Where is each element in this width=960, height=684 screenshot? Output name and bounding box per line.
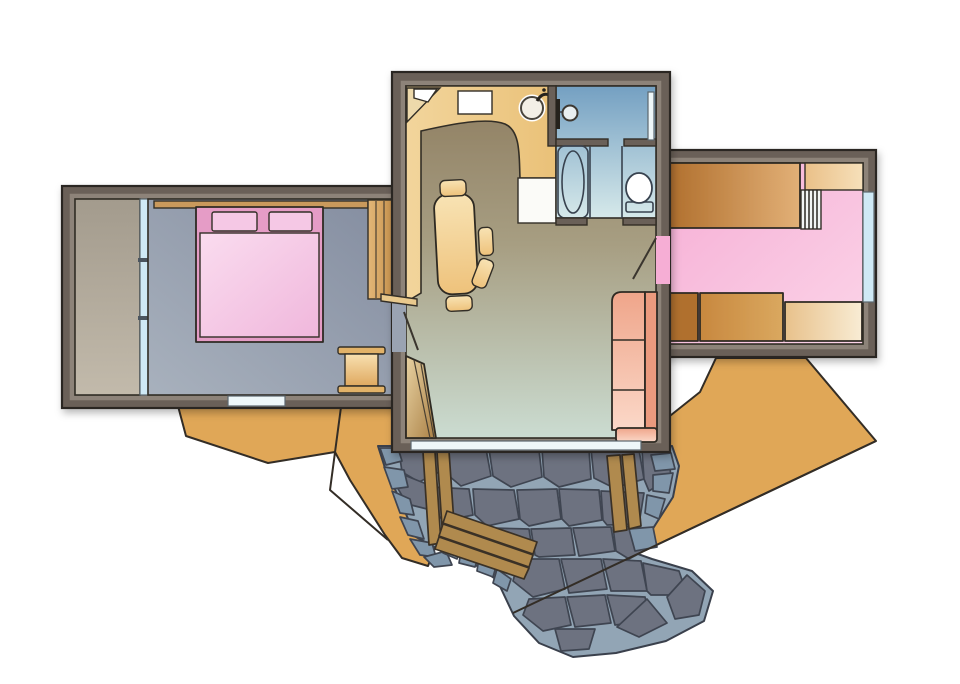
nightstand-body bbox=[345, 354, 378, 386]
floor-plan-stage bbox=[0, 0, 960, 684]
loft-platform bbox=[668, 163, 800, 228]
bathroom-wall bbox=[623, 218, 656, 225]
toilet bbox=[626, 173, 652, 203]
stone bbox=[473, 489, 519, 526]
loft-ladder bbox=[801, 190, 821, 229]
kitchen-counter bbox=[518, 178, 556, 223]
porch-floor bbox=[75, 199, 140, 395]
corner-shelf bbox=[805, 163, 863, 190]
main-building bbox=[392, 72, 670, 452]
kitchen-sink bbox=[521, 97, 543, 119]
shower-head-icon bbox=[563, 106, 578, 121]
sliding-glass-door bbox=[411, 441, 641, 450]
sofa-armrest bbox=[616, 428, 657, 442]
stone bbox=[573, 527, 615, 556]
right-wing bbox=[656, 150, 876, 357]
bathroom-wall-shelf bbox=[648, 92, 654, 140]
bedroom-door-opening bbox=[392, 300, 406, 352]
stove bbox=[458, 91, 492, 114]
stone bbox=[555, 629, 595, 651]
stone bbox=[542, 449, 591, 487]
bedspread bbox=[200, 233, 319, 337]
chair bbox=[478, 227, 493, 256]
pillow bbox=[269, 212, 312, 231]
sofa-seat bbox=[612, 292, 645, 430]
bunk-room-door-opening bbox=[656, 236, 670, 284]
bunk-room-window bbox=[863, 192, 874, 302]
chair bbox=[446, 295, 473, 311]
sofa-back bbox=[645, 292, 657, 430]
bathroom-wall bbox=[556, 218, 587, 225]
border-stone bbox=[651, 453, 675, 471]
storage-cabinet-mid bbox=[700, 293, 783, 341]
nightstand-base bbox=[338, 386, 385, 393]
pillow bbox=[212, 212, 257, 231]
stone bbox=[517, 489, 561, 526]
storage-bench bbox=[785, 302, 862, 341]
faucet-knob bbox=[542, 88, 546, 92]
left-wing bbox=[62, 186, 398, 408]
floor-plan-canvas bbox=[0, 0, 960, 684]
glass-partition bbox=[140, 199, 148, 395]
wardrobe bbox=[368, 200, 392, 299]
stone bbox=[603, 559, 647, 591]
stone bbox=[559, 489, 602, 526]
chair bbox=[440, 179, 467, 196]
stone bbox=[567, 595, 611, 627]
shower-partition bbox=[556, 139, 608, 146]
shower-bar bbox=[556, 99, 560, 129]
nightstand-top bbox=[338, 347, 385, 354]
border-stone bbox=[653, 473, 673, 493]
bedroom-window bbox=[228, 396, 285, 406]
sofa bbox=[612, 292, 657, 442]
bathroom-partition-wall bbox=[548, 86, 556, 146]
storage-cabinet-small bbox=[668, 293, 698, 341]
